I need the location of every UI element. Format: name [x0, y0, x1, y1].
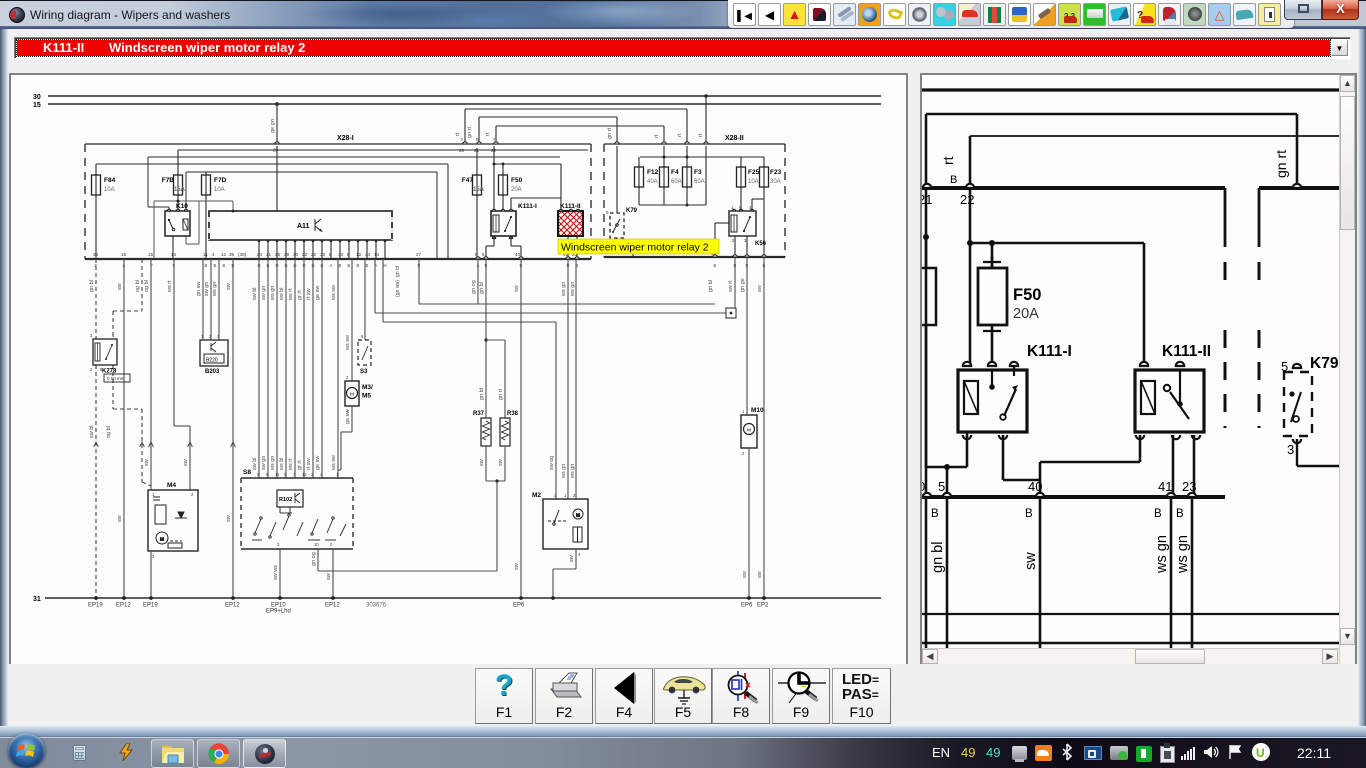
svg-text:5: 5	[482, 252, 485, 257]
svg-text:ge sw: ge sw	[315, 456, 321, 470]
svg-text:B: B	[223, 263, 226, 268]
svg-text:F4: F4	[671, 169, 679, 176]
svg-text:40: 40	[1028, 479, 1042, 494]
svg-text:ws gn: ws gn	[561, 464, 567, 479]
svg-text:M: M	[576, 513, 580, 518]
svg-text:3: 3	[277, 542, 280, 547]
svg-text:EP9+Lhd: EP9+Lhd	[266, 609, 291, 615]
svg-text:(gn ws) gn bl: (gn ws) gn bl	[395, 266, 401, 297]
svg-text:gn rt: gn rt	[1273, 150, 1289, 178]
svg-text:M4: M4	[167, 482, 176, 489]
svg-text:ws sw: ws sw	[345, 335, 351, 351]
svg-text:ge sw: ge sw	[345, 410, 351, 424]
svg-text:K79: K79	[1310, 355, 1339, 372]
svg-text:30A: 30A	[770, 179, 781, 185]
svg-text:B: B	[214, 263, 217, 268]
svg-text:X28-II: X28-II	[725, 135, 744, 142]
svg-text:ws gn: ws gn	[1175, 535, 1191, 574]
svg-text:15: 15	[148, 252, 154, 257]
svg-text:EP19: EP19	[88, 603, 103, 609]
svg-text:sw gn: sw gn	[204, 282, 210, 296]
svg-text:sw rt: sw rt	[728, 280, 734, 292]
svg-text:R38: R38	[507, 411, 519, 417]
svg-text:M: M	[747, 428, 751, 434]
svg-text:gn og: gn og	[311, 552, 317, 566]
svg-text:ge sw: ge sw	[315, 286, 321, 300]
svg-text:sw gn: sw gn	[261, 456, 267, 470]
svg-text:og bl: og bl	[135, 280, 141, 292]
svg-text:ws sw: ws sw	[331, 455, 337, 471]
svg-text:B: B	[714, 263, 717, 268]
svg-text:60A: 60A	[671, 179, 682, 185]
svg-text:10: 10	[314, 542, 319, 547]
svg-text:10A: 10A	[214, 187, 225, 193]
svg-text:1: 1	[564, 493, 567, 498]
svg-text:M: M	[350, 392, 354, 398]
svg-text:40: 40	[515, 252, 521, 257]
svg-text:rt: rt	[485, 132, 491, 136]
svg-text:35: 35	[229, 252, 235, 257]
svg-text:20A: 20A	[1013, 306, 1039, 322]
svg-text:og bl: og bl	[144, 280, 150, 292]
svg-text:2: 2	[90, 367, 93, 372]
svg-text:B: B	[1025, 508, 1033, 520]
svg-text:2: 2	[191, 492, 194, 497]
svg-text:23: 23	[1182, 479, 1196, 494]
svg-text:rt sw: rt sw	[306, 458, 312, 470]
svg-text:B: B	[1176, 508, 1184, 520]
svg-text:F23: F23	[770, 169, 782, 176]
svg-text:EP19: EP19	[143, 603, 158, 609]
svg-text:5: 5	[606, 210, 609, 215]
svg-text:6: 6	[361, 334, 364, 339]
svg-text:21: 21	[922, 192, 932, 207]
svg-text:gr rt: gr rt	[297, 460, 303, 470]
svg-text:sw: sw	[183, 459, 189, 466]
svg-text:B: B	[931, 508, 939, 520]
svg-text:ws gn: ws gn	[212, 282, 218, 297]
svg-text:B: B	[1154, 508, 1162, 520]
svg-text:og bl: og bl	[106, 426, 112, 438]
svg-text:M10: M10	[751, 407, 764, 414]
svg-text:ws gn: ws gn	[570, 464, 576, 479]
svg-text:F50: F50	[511, 177, 523, 184]
svg-text:4: 4	[212, 252, 215, 257]
svg-text:ws sw: ws sw	[331, 285, 337, 301]
svg-text:ws gn: ws gn	[561, 282, 567, 297]
svg-text:4: 4	[578, 552, 581, 557]
svg-text:EP6: EP6	[513, 603, 525, 609]
svg-text:K56: K56	[755, 241, 767, 247]
svg-text:gn rt: gn rt	[607, 128, 613, 139]
svg-text:ws gn: ws gn	[270, 286, 276, 301]
svg-text:30: 30	[33, 94, 41, 101]
svg-text:0.50 mm: 0.50 mm	[107, 376, 125, 381]
svg-text:10A: 10A	[104, 187, 115, 193]
svg-text:sw og: sw og	[549, 456, 555, 470]
svg-text:X28-I: X28-I	[337, 135, 354, 142]
svg-text:ge gn: ge gn	[270, 119, 276, 133]
svg-text:ws gn: ws gn	[1154, 535, 1170, 574]
svg-text:sw: sw	[514, 285, 520, 292]
svg-text:B: B	[950, 174, 957, 186]
svg-text:gr rt: gr rt	[297, 290, 303, 300]
svg-text:15A: 15A	[473, 187, 485, 193]
svg-text:2: 2	[346, 375, 349, 380]
svg-text:F84: F84	[104, 177, 116, 184]
svg-text:gn bl: gn bl	[930, 542, 946, 573]
svg-text:Windscreen wiper motor relay 2: Windscreen wiper motor relay 2	[561, 242, 709, 254]
svg-text:gn bl: gn bl	[708, 280, 714, 292]
svg-text:M5: M5	[362, 393, 371, 400]
svg-text:10A: 10A	[748, 179, 759, 185]
svg-text:22: 22	[960, 192, 974, 207]
svg-text:ws rt: ws rt	[167, 280, 173, 293]
svg-text:0: 0	[330, 542, 333, 547]
svg-text:sw: sw	[226, 283, 232, 290]
svg-text:A11: A11	[297, 223, 310, 230]
svg-text:gn ge: gn ge	[740, 278, 746, 292]
svg-text:11: 11	[203, 252, 208, 257]
svg-text:sw: sw	[117, 515, 123, 522]
svg-text:F7D: F7D	[214, 177, 227, 184]
svg-text:F3: F3	[694, 169, 702, 176]
svg-text:sw: sw	[757, 285, 763, 292]
svg-text:sw: sw	[569, 555, 575, 562]
svg-text:9: 9	[329, 252, 332, 257]
svg-text:K111-II: K111-II	[560, 203, 581, 210]
svg-text:22: 22	[311, 252, 317, 257]
svg-text:1: 1	[742, 409, 745, 414]
svg-text:15: 15	[33, 102, 41, 109]
svg-text:27: 27	[416, 252, 422, 257]
svg-text:F25: F25	[748, 169, 760, 176]
svg-text:gn rt: gn rt	[467, 127, 473, 138]
svg-text:F50: F50	[1013, 286, 1041, 304]
svg-text:B: B	[339, 263, 342, 268]
svg-text:43: 43	[338, 252, 344, 257]
svg-text:19: 19	[121, 252, 127, 257]
svg-text:B: B	[357, 263, 360, 268]
svg-text:rt: rt	[455, 132, 461, 136]
svg-text:ws gn: ws gn	[570, 282, 576, 297]
svg-text:K111-I: K111-I	[518, 203, 537, 210]
svg-text:sw gn: sw gn	[261, 286, 267, 300]
svg-text:K79: K79	[626, 208, 638, 214]
svg-text:H: H	[384, 263, 387, 268]
svg-text:gn bl: gn bl	[479, 282, 485, 294]
svg-text:ws bl: ws bl	[279, 457, 285, 471]
svg-text:S3: S3	[360, 369, 368, 375]
svg-text:ws rt: ws rt	[288, 458, 294, 471]
svg-text:sw: sw	[144, 459, 150, 466]
svg-text:A: A	[330, 263, 333, 268]
svg-text:12: 12	[221, 252, 227, 257]
svg-text:S8: S8	[243, 469, 251, 476]
svg-text:K111-I: K111-I	[1027, 343, 1072, 360]
svg-text:B203: B203	[205, 369, 220, 375]
svg-text:1: 1	[152, 492, 155, 497]
svg-text:20A: 20A	[511, 187, 522, 193]
svg-text:rt: rt	[677, 133, 683, 137]
svg-text:15A: 15A	[174, 187, 186, 193]
svg-text:gn bl: gn bl	[479, 388, 485, 400]
svg-text:sw bl: sw bl	[252, 457, 258, 470]
svg-text:gn bl: gn bl	[89, 280, 95, 292]
svg-text:14: 14	[374, 252, 380, 257]
svg-text:B: B	[348, 263, 351, 268]
svg-text:B: B	[205, 263, 208, 268]
svg-text:12: 12	[302, 472, 307, 477]
svg-text:sw: sw	[117, 283, 123, 290]
svg-text:rt sw: rt sw	[306, 288, 312, 300]
svg-text:R37: R37	[473, 411, 485, 417]
svg-text:R102: R102	[279, 497, 292, 503]
svg-text:sw: sw	[226, 515, 232, 522]
svg-text:rt: rt	[654, 134, 660, 138]
svg-text:2: 2	[742, 451, 745, 456]
svg-text:sw bl: sw bl	[89, 425, 95, 438]
svg-text:31: 31	[33, 596, 41, 603]
svg-text:3: 3	[90, 333, 93, 338]
svg-text:6: 6	[347, 252, 350, 257]
svg-text:3: 3	[1287, 442, 1294, 457]
svg-text:21: 21	[266, 252, 272, 257]
svg-text:sw: sw	[514, 563, 520, 570]
svg-text:30: 30	[293, 252, 299, 257]
svg-text:sw ws: sw ws	[273, 565, 279, 580]
svg-text:M2: M2	[532, 492, 541, 499]
svg-text:41: 41	[1158, 479, 1172, 494]
svg-text:M3/: M3/	[362, 384, 373, 391]
svg-text:sw: sw	[757, 571, 763, 578]
svg-text:F12: F12	[647, 169, 659, 176]
svg-text:sw bl: sw bl	[252, 287, 258, 300]
svg-text:F7B: F7B	[162, 177, 175, 184]
svg-text:EP12: EP12	[116, 603, 131, 609]
svg-text:(38): (38)	[238, 252, 247, 257]
svg-text:0: 0	[922, 479, 925, 494]
svg-text:0: 0	[461, 138, 463, 142]
svg-text:ws bl: ws bl	[279, 287, 285, 301]
svg-text:sw: sw	[1023, 552, 1039, 570]
svg-text:14: 14	[171, 252, 177, 257]
svg-text:B: B	[366, 263, 369, 268]
svg-text:29: 29	[284, 252, 290, 257]
svg-text:sw: sw	[479, 459, 485, 466]
svg-text:gn rt: gn rt	[498, 389, 504, 400]
svg-text:25: 25	[275, 252, 281, 257]
svg-text:24: 24	[257, 252, 263, 257]
svg-text:60A: 60A	[694, 179, 705, 185]
svg-text:sw: sw	[498, 459, 504, 466]
svg-text:gn sw: gn sw	[196, 282, 202, 296]
svg-text:3: 3	[152, 554, 155, 559]
svg-text:0: 0	[493, 138, 495, 142]
svg-text:ws gn: ws gn	[270, 456, 276, 471]
svg-text:gn og: gn og	[471, 280, 477, 294]
svg-text:ws rt: ws rt	[288, 288, 294, 301]
svg-text:rt: rt	[698, 133, 704, 137]
svg-text:EP2: EP2	[757, 603, 769, 609]
svg-text:B220: B220	[206, 358, 218, 364]
svg-text:1: 1	[112, 333, 115, 338]
svg-text:rt: rt	[940, 156, 956, 165]
svg-text:11: 11	[275, 472, 280, 477]
svg-text:40A: 40A	[647, 179, 658, 185]
svg-text:EP6: EP6	[741, 603, 753, 609]
svg-text:303676: 303676	[366, 603, 387, 609]
svg-text:F47: F47	[462, 177, 474, 184]
svg-text:12: 12	[356, 252, 362, 257]
svg-text:23: 23	[302, 252, 308, 257]
svg-text:EP12: EP12	[325, 603, 340, 609]
svg-text:44: 44	[365, 252, 371, 257]
svg-text:5: 5	[938, 479, 945, 494]
svg-text:EP12: EP12	[225, 603, 240, 609]
svg-text:sw: sw	[742, 571, 748, 578]
svg-text:33: 33	[320, 252, 326, 257]
svg-text:sw: sw	[326, 573, 332, 580]
svg-text:36: 36	[93, 252, 99, 257]
svg-text:K111-II: K111-II	[1162, 343, 1211, 360]
svg-text:M: M	[160, 537, 164, 543]
